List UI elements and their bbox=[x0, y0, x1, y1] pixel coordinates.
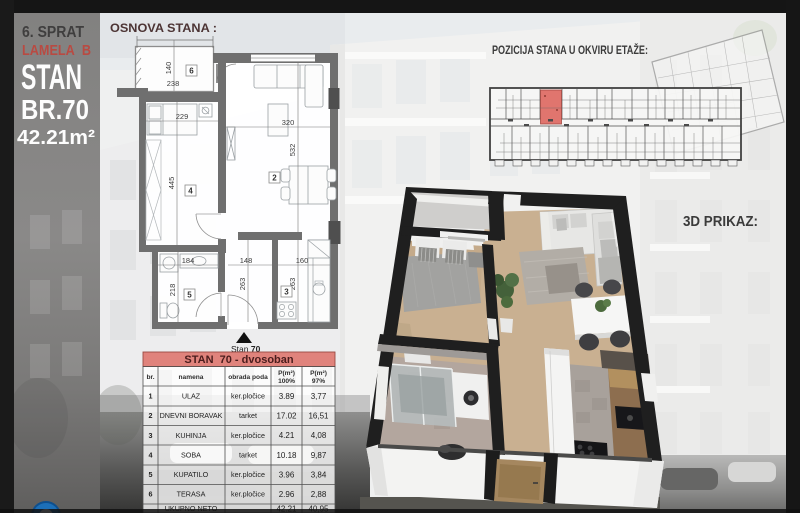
svg-text:LAMELA B: LAMELA B bbox=[22, 43, 91, 59]
svg-text:BR.70: BR.70 bbox=[21, 94, 89, 125]
svg-text:POZICIJA STANA U OKVIRU ETAŽE:: POZICIJA STANA U OKVIRU ETAŽE: bbox=[492, 42, 648, 57]
svg-text:3D PRIKAZ:: 3D PRIKAZ: bbox=[683, 214, 758, 230]
svg-text:42.21m²: 42.21m² bbox=[17, 127, 95, 149]
svg-text:STAN: STAN bbox=[21, 58, 82, 97]
svg-text:6. SPRAT: 6. SPRAT bbox=[22, 24, 84, 41]
svg-text:OSNOVA STANA :: OSNOVA STANA : bbox=[110, 21, 217, 35]
